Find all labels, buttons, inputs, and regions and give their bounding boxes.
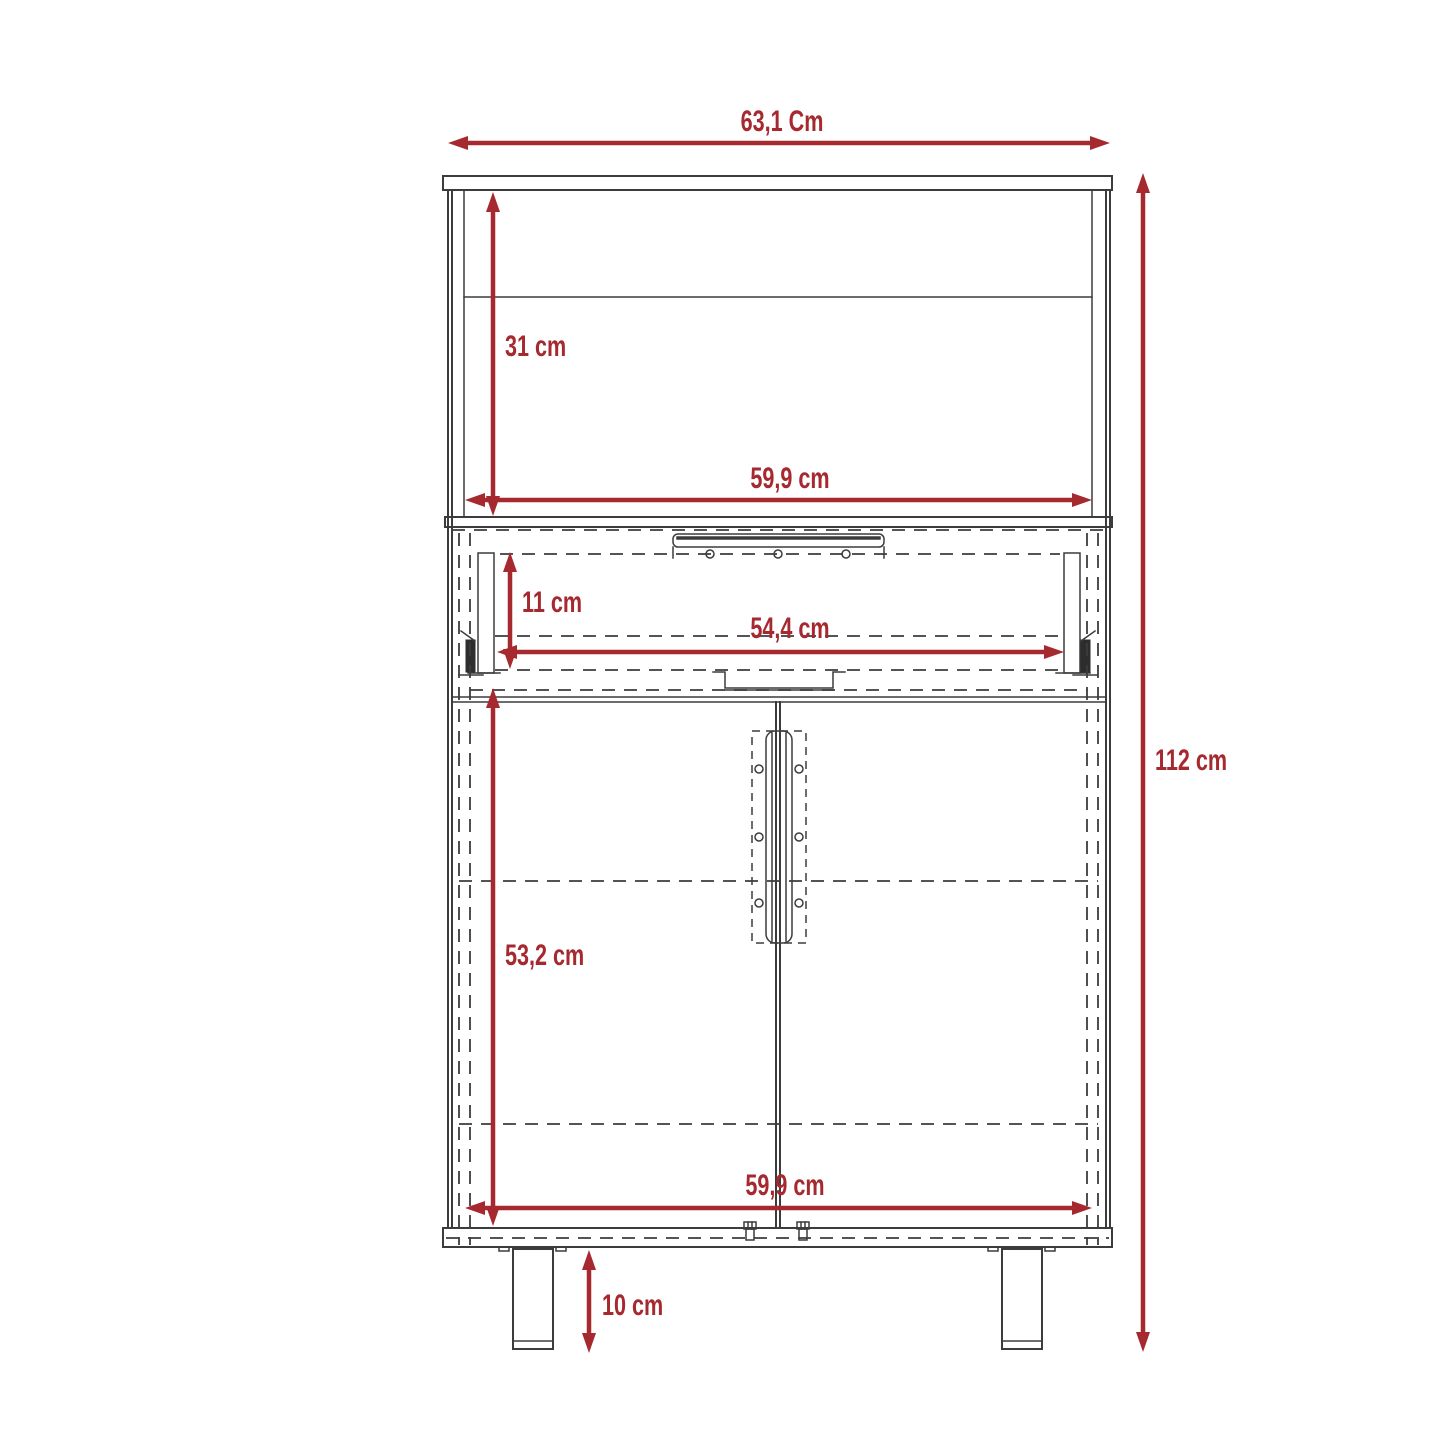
drawer-bottom-profile bbox=[713, 672, 845, 690]
arrowhead-left-icon bbox=[448, 136, 468, 150]
dimension-drawer-width: 54,4 cm bbox=[497, 610, 1064, 659]
dimension-top-width: 63,1 Cm bbox=[448, 103, 1110, 150]
middle-shelf bbox=[445, 517, 1112, 527]
right-leg-plate-notch bbox=[1045, 1247, 1055, 1251]
left-leg-plate-notch bbox=[499, 1247, 509, 1251]
right-drawer-slide-bracket bbox=[1073, 631, 1097, 675]
hinge-screw-icon bbox=[755, 833, 763, 841]
right-leg-plate-notch bbox=[988, 1247, 998, 1251]
dimension-lower-inner-width: 59,9 cm bbox=[465, 1167, 1092, 1215]
diagram-svg: 63,1 Cm 31 cm 59,9 cm 11 cm bbox=[0, 0, 1445, 1445]
right-leg bbox=[988, 1247, 1055, 1349]
dimension-label-drawer-height: 11 cm bbox=[522, 584, 582, 618]
dimension-label-drawer-width: 54,4 cm bbox=[750, 610, 829, 644]
left-drawer-slide-bracket bbox=[459, 631, 483, 675]
arrowhead-right-icon bbox=[1072, 1201, 1092, 1215]
dimension-upper-inner-width: 59,9 cm bbox=[465, 460, 1092, 507]
dimension-label-hutch-height: 31 cm bbox=[505, 328, 566, 362]
arrowhead-up-icon bbox=[486, 192, 500, 212]
arrowhead-left-icon bbox=[465, 1201, 485, 1215]
arrowhead-up-icon bbox=[582, 1250, 596, 1270]
arrowhead-right-icon bbox=[1090, 136, 1110, 150]
arrowhead-up-icon bbox=[486, 688, 500, 708]
dimension-leg-height: 10 cm bbox=[582, 1250, 663, 1353]
dimension-label-leg-height: 10 cm bbox=[602, 1287, 663, 1321]
handle-screw-icon bbox=[842, 550, 850, 558]
door-center-gap bbox=[776, 702, 780, 1228]
top-panel bbox=[443, 176, 1112, 190]
dimension-total-height: 112 cm bbox=[1136, 173, 1227, 1352]
dimension-hutch-height: 31 cm bbox=[486, 192, 566, 516]
left-leg-plate-notch bbox=[556, 1247, 566, 1251]
left-side-panel bbox=[448, 190, 452, 1228]
hinge-screw-icon bbox=[795, 833, 803, 841]
right-side-panel bbox=[1106, 190, 1110, 1228]
arrowhead-right-icon bbox=[1072, 493, 1092, 507]
arrowhead-down-icon bbox=[582, 1333, 596, 1353]
dimension-label-lower-inner-width: 59,9 cm bbox=[745, 1167, 824, 1201]
left-leg bbox=[499, 1247, 566, 1349]
arrowhead-up-icon bbox=[503, 552, 517, 572]
hinge-screw-icon bbox=[795, 765, 803, 773]
hinge-screw-icon bbox=[795, 899, 803, 907]
arrowhead-up-icon bbox=[1136, 173, 1150, 193]
dimension-label-total-height: 112 cm bbox=[1155, 742, 1227, 776]
arrowhead-down-icon bbox=[1136, 1332, 1150, 1352]
arrowhead-left-icon bbox=[465, 493, 485, 507]
hinge-screw-icon bbox=[755, 765, 763, 773]
hinge-screw-icon bbox=[755, 899, 763, 907]
dimension-door-section-height: 53,2 cm bbox=[486, 688, 584, 1226]
dimension-label-top-width: 63,1 Cm bbox=[741, 103, 824, 137]
dimension-label-door-section-height: 53,2 cm bbox=[505, 937, 584, 971]
arrowhead-right-icon bbox=[1044, 645, 1064, 659]
cabinet-dimension-diagram: 63,1 Cm 31 cm 59,9 cm 11 cm bbox=[0, 0, 1445, 1445]
dimension-label-upper-inner-width: 59,9 cm bbox=[750, 460, 829, 494]
